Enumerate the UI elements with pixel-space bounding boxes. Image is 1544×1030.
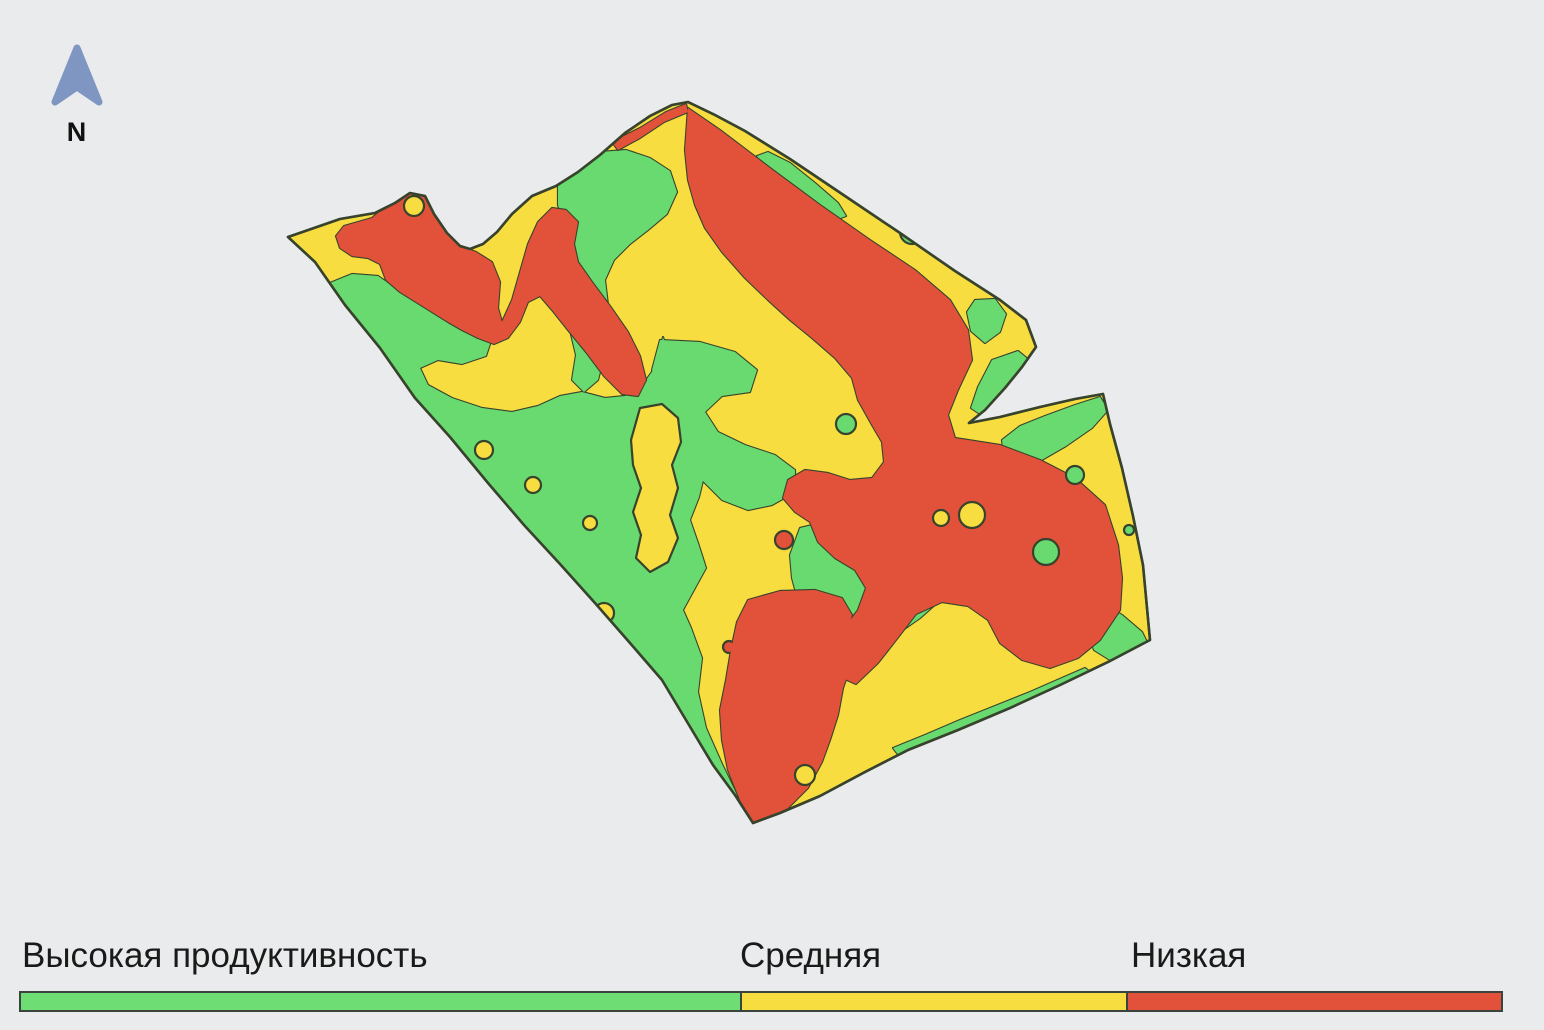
field <box>288 102 1150 823</box>
north-indicator: N <box>44 40 110 148</box>
north-arrow-icon <box>44 40 110 110</box>
field-map <box>0 0 1544 1030</box>
north-label: N <box>44 117 110 148</box>
productivity-map-screen: N Высокая продуктивность Средняя Низкая <box>0 0 1544 1030</box>
